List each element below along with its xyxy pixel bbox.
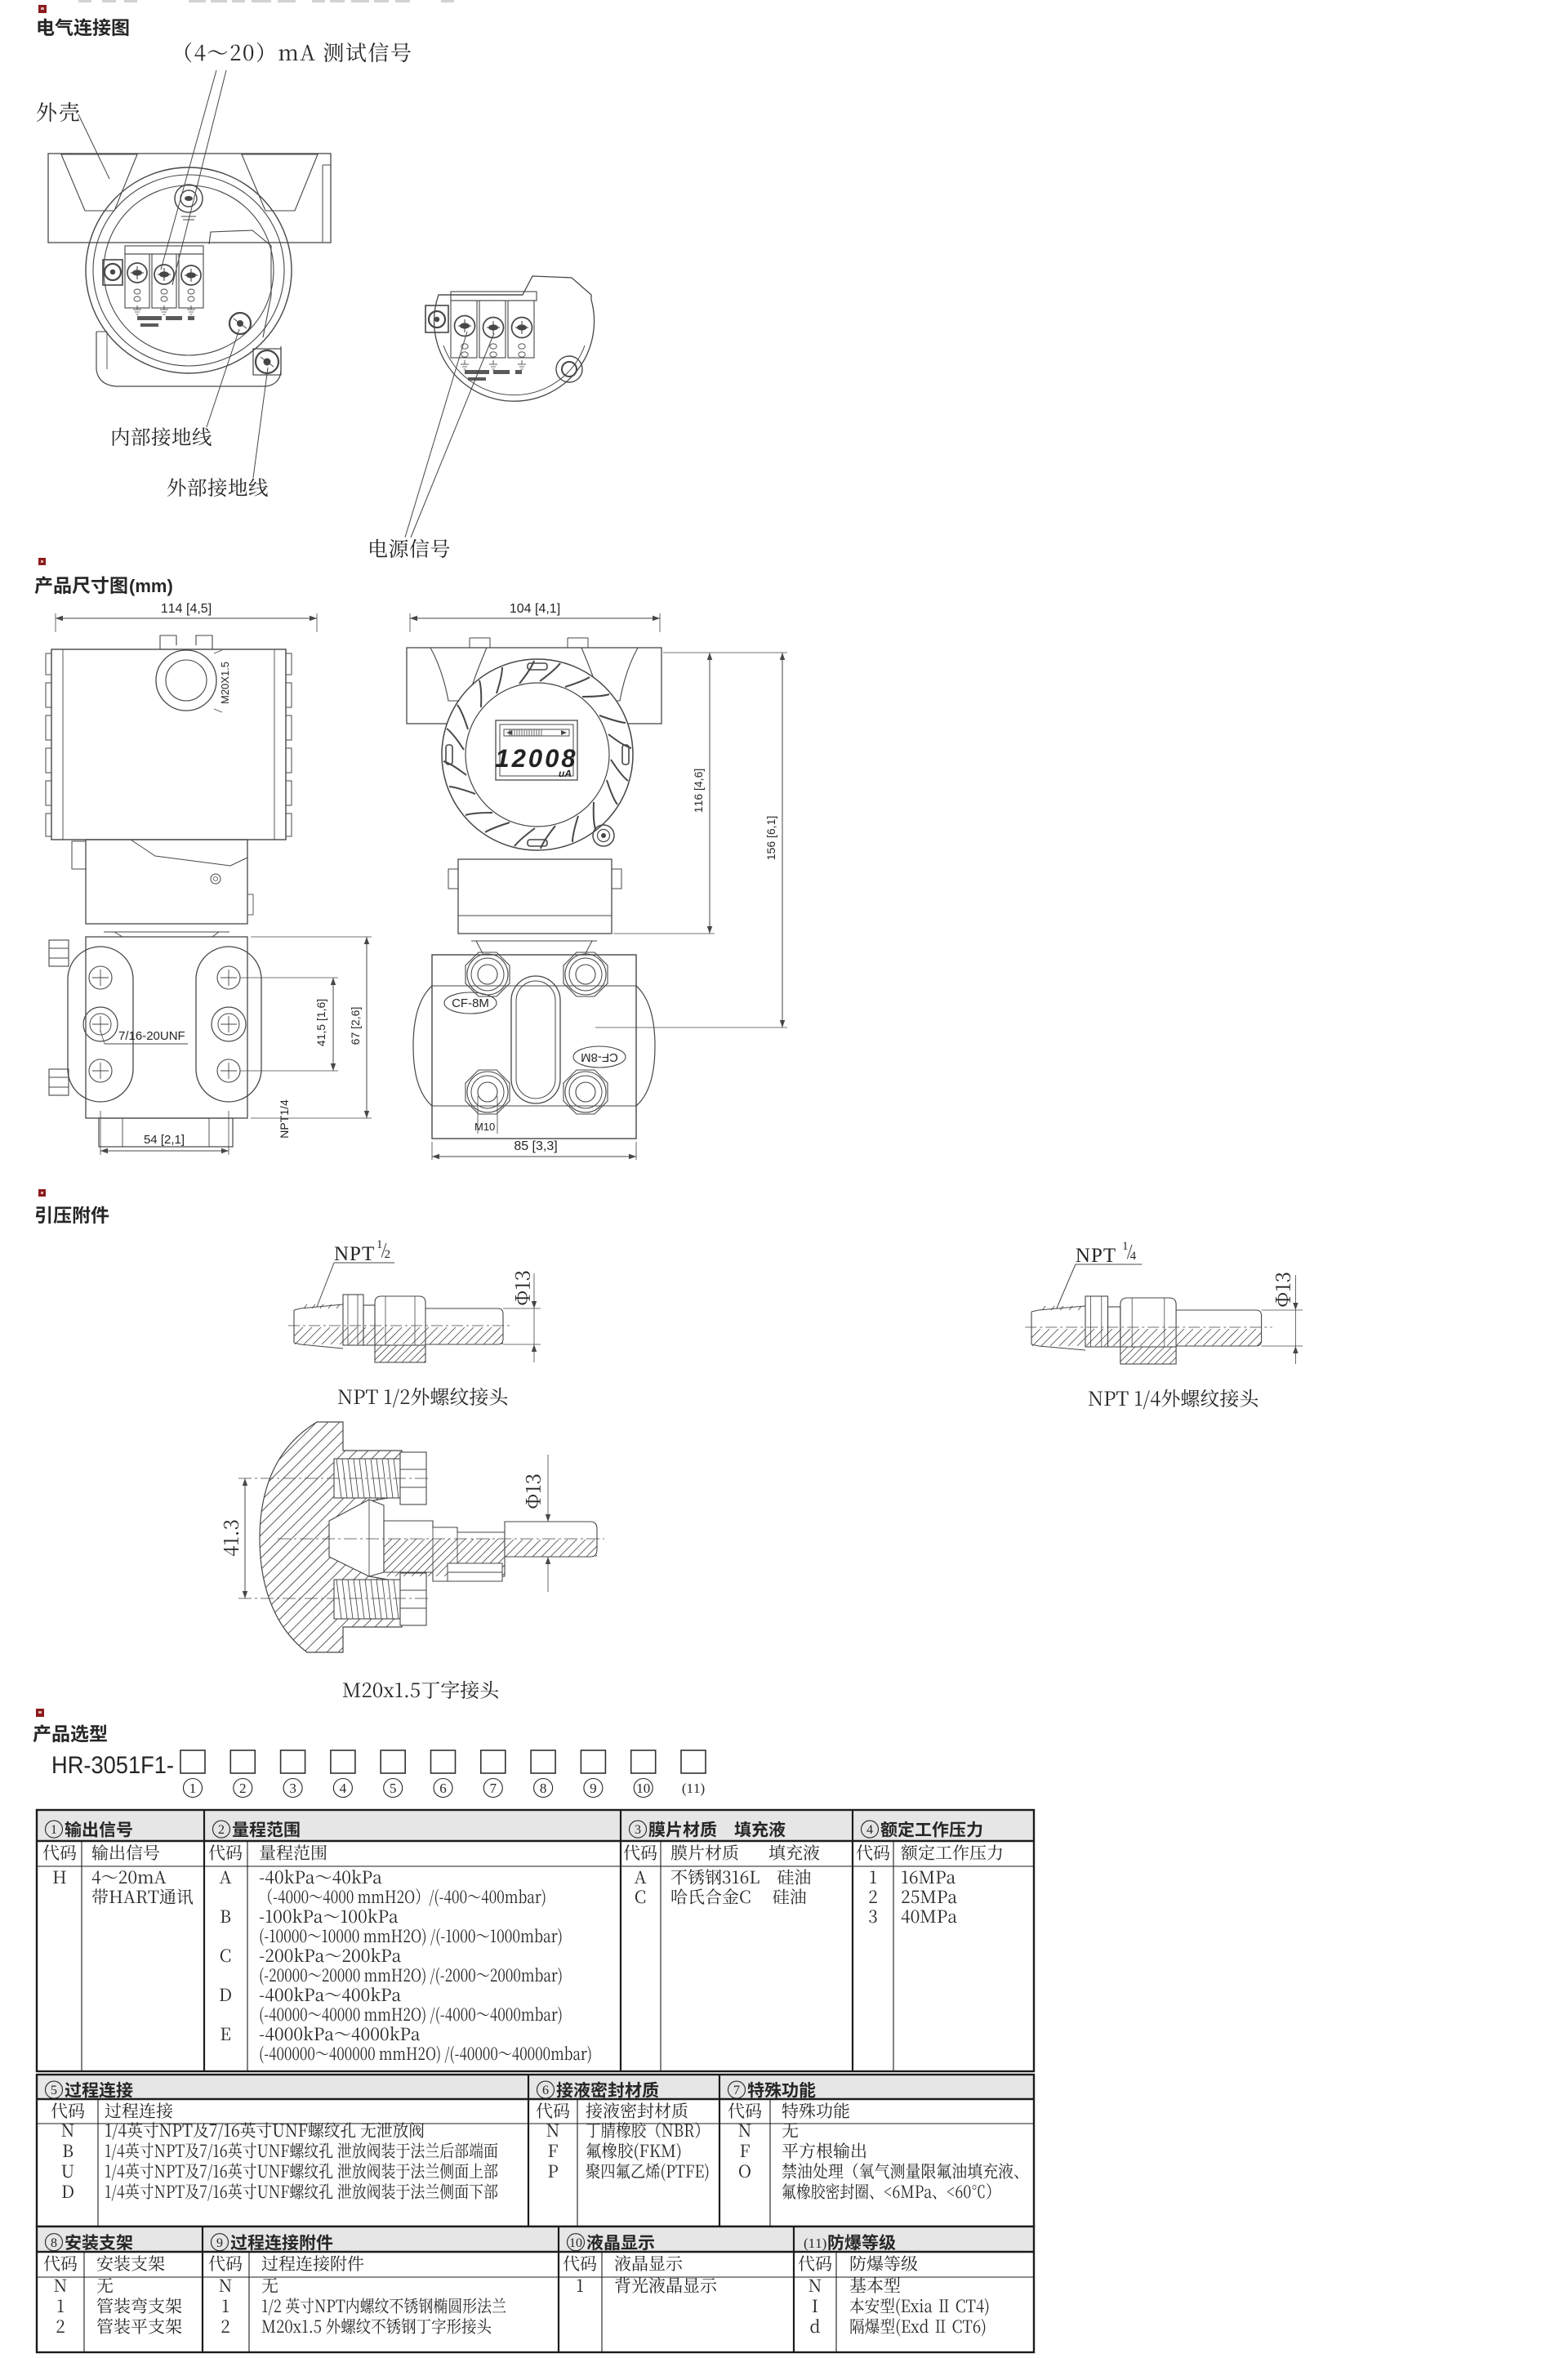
svg-text:7: 7 [490, 1781, 497, 1796]
svg-text:67 [2,6]: 67 [2,6] [349, 1007, 362, 1045]
svg-text:HR-3051F1-: HR-3051F1- [51, 1752, 174, 1779]
svg-text:156 [6,1]: 156 [6,1] [764, 816, 777, 861]
svg-text:1: 1 [376, 1238, 382, 1251]
svg-text:(11): (11) [804, 2235, 826, 2251]
svg-text:1: 1 [51, 1823, 57, 1837]
svg-text:2: 2 [385, 1248, 390, 1261]
svg-text:CF-8M: CF-8M [452, 996, 489, 1010]
svg-text:NPT1/4: NPT1/4 [278, 1099, 291, 1139]
svg-text:114 [4,5]: 114 [4,5] [161, 602, 212, 616]
svg-text:6: 6 [542, 2084, 549, 2097]
svg-text:(11): (11) [682, 1781, 705, 1796]
svg-text:7: 7 [733, 2084, 740, 2097]
svg-text:5: 5 [51, 2084, 57, 2097]
svg-text:10: 10 [636, 1781, 650, 1796]
svg-text:9: 9 [216, 2236, 223, 2250]
svg-text:8: 8 [51, 2236, 57, 2250]
svg-text:4: 4 [866, 1823, 873, 1837]
svg-text:2: 2 [239, 1781, 247, 1796]
svg-text:5: 5 [390, 1781, 397, 1796]
svg-text:4: 4 [1130, 1250, 1137, 1263]
svg-text:3: 3 [635, 1823, 641, 1837]
svg-text:2: 2 [218, 1823, 225, 1837]
svg-text:116 [4,6]: 116 [4,6] [692, 769, 705, 813]
svg-text:1: 1 [189, 1781, 197, 1796]
svg-text:(mm): (mm) [129, 576, 173, 596]
svg-text:41,5 [1,6]: 41,5 [1,6] [314, 999, 327, 1046]
svg-text:9: 9 [590, 1781, 597, 1796]
svg-text:85 [3,3]: 85 [3,3] [514, 1139, 557, 1153]
svg-text:6: 6 [439, 1781, 447, 1796]
svg-text:7/16-20UNF: 7/16-20UNF [118, 1029, 185, 1043]
svg-text:M20X1.5: M20X1.5 [219, 662, 231, 704]
svg-text:8: 8 [540, 1781, 547, 1796]
svg-text:10: 10 [569, 2236, 582, 2250]
svg-text:NPT: NPT [1076, 1245, 1116, 1267]
svg-text:3: 3 [289, 1781, 296, 1796]
svg-text:4: 4 [340, 1781, 347, 1796]
svg-text:NPT: NPT [334, 1243, 375, 1265]
svg-text:M10: M10 [474, 1121, 495, 1133]
svg-text:CF-8M: CF-8M [581, 1050, 618, 1064]
svg-text:104 [4,1]: 104 [4,1] [510, 602, 560, 616]
svg-text:1: 1 [1122, 1240, 1128, 1253]
svg-text:54 [2,1]: 54 [2,1] [144, 1133, 185, 1147]
